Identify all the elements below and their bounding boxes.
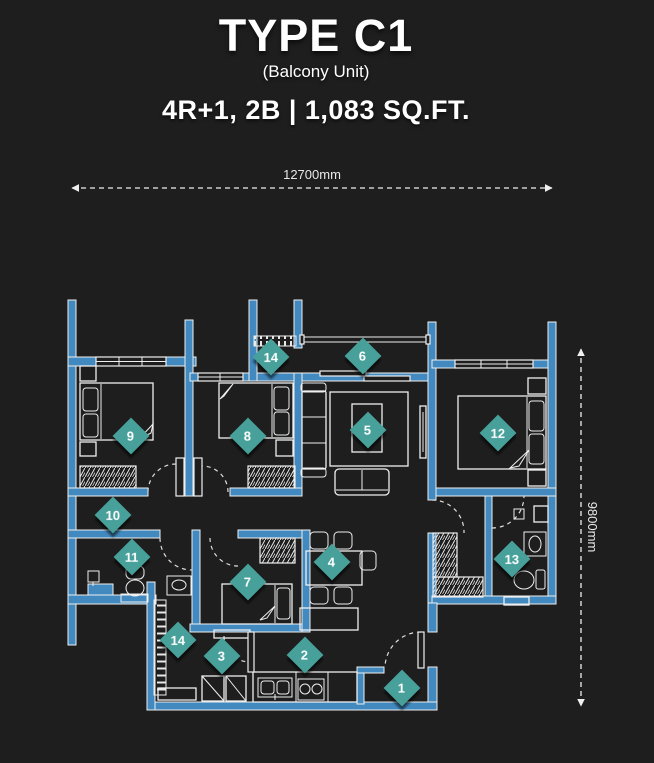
room-marker-11: 11 <box>114 539 151 576</box>
room-marker-9: 9 <box>113 418 150 455</box>
room-marker-14: 14 <box>160 622 197 659</box>
room-marker-label: 10 <box>106 508 120 523</box>
markers-layer: 123456789101112131414 <box>0 0 654 763</box>
room-marker-label: 11 <box>125 550 139 565</box>
room-marker-label: 14 <box>171 633 185 648</box>
room-marker-1: 1 <box>384 670 421 707</box>
room-marker-label: 5 <box>364 422 371 437</box>
room-marker-label: 3 <box>218 648 225 663</box>
room-marker-label: 7 <box>244 574 251 589</box>
room-marker-label: 2 <box>301 647 308 662</box>
room-marker-label: 12 <box>491 426 505 441</box>
room-marker-label: 1 <box>398 680 405 695</box>
room-marker-8: 8 <box>230 418 267 455</box>
room-marker-14: 14 <box>253 339 290 376</box>
room-marker-label: 6 <box>359 348 366 363</box>
room-marker-label: 4 <box>328 554 335 569</box>
room-marker-4: 4 <box>314 544 351 581</box>
room-marker-10: 10 <box>95 497 132 534</box>
room-marker-label: 14 <box>264 350 278 365</box>
room-marker-3: 3 <box>204 638 241 675</box>
room-marker-7: 7 <box>230 564 267 601</box>
room-marker-label: 13 <box>505 552 519 567</box>
room-marker-label: 9 <box>127 428 134 443</box>
room-marker-5: 5 <box>350 412 387 449</box>
room-marker-2: 2 <box>287 637 324 674</box>
room-marker-13: 13 <box>494 541 531 578</box>
room-marker-12: 12 <box>480 415 517 452</box>
room-marker-label: 8 <box>244 428 251 443</box>
room-marker-6: 6 <box>345 338 382 375</box>
floor-plan-page: TYPE C1 (Balcony Unit) 4R+1, 2B | 1,083 … <box>0 0 654 763</box>
